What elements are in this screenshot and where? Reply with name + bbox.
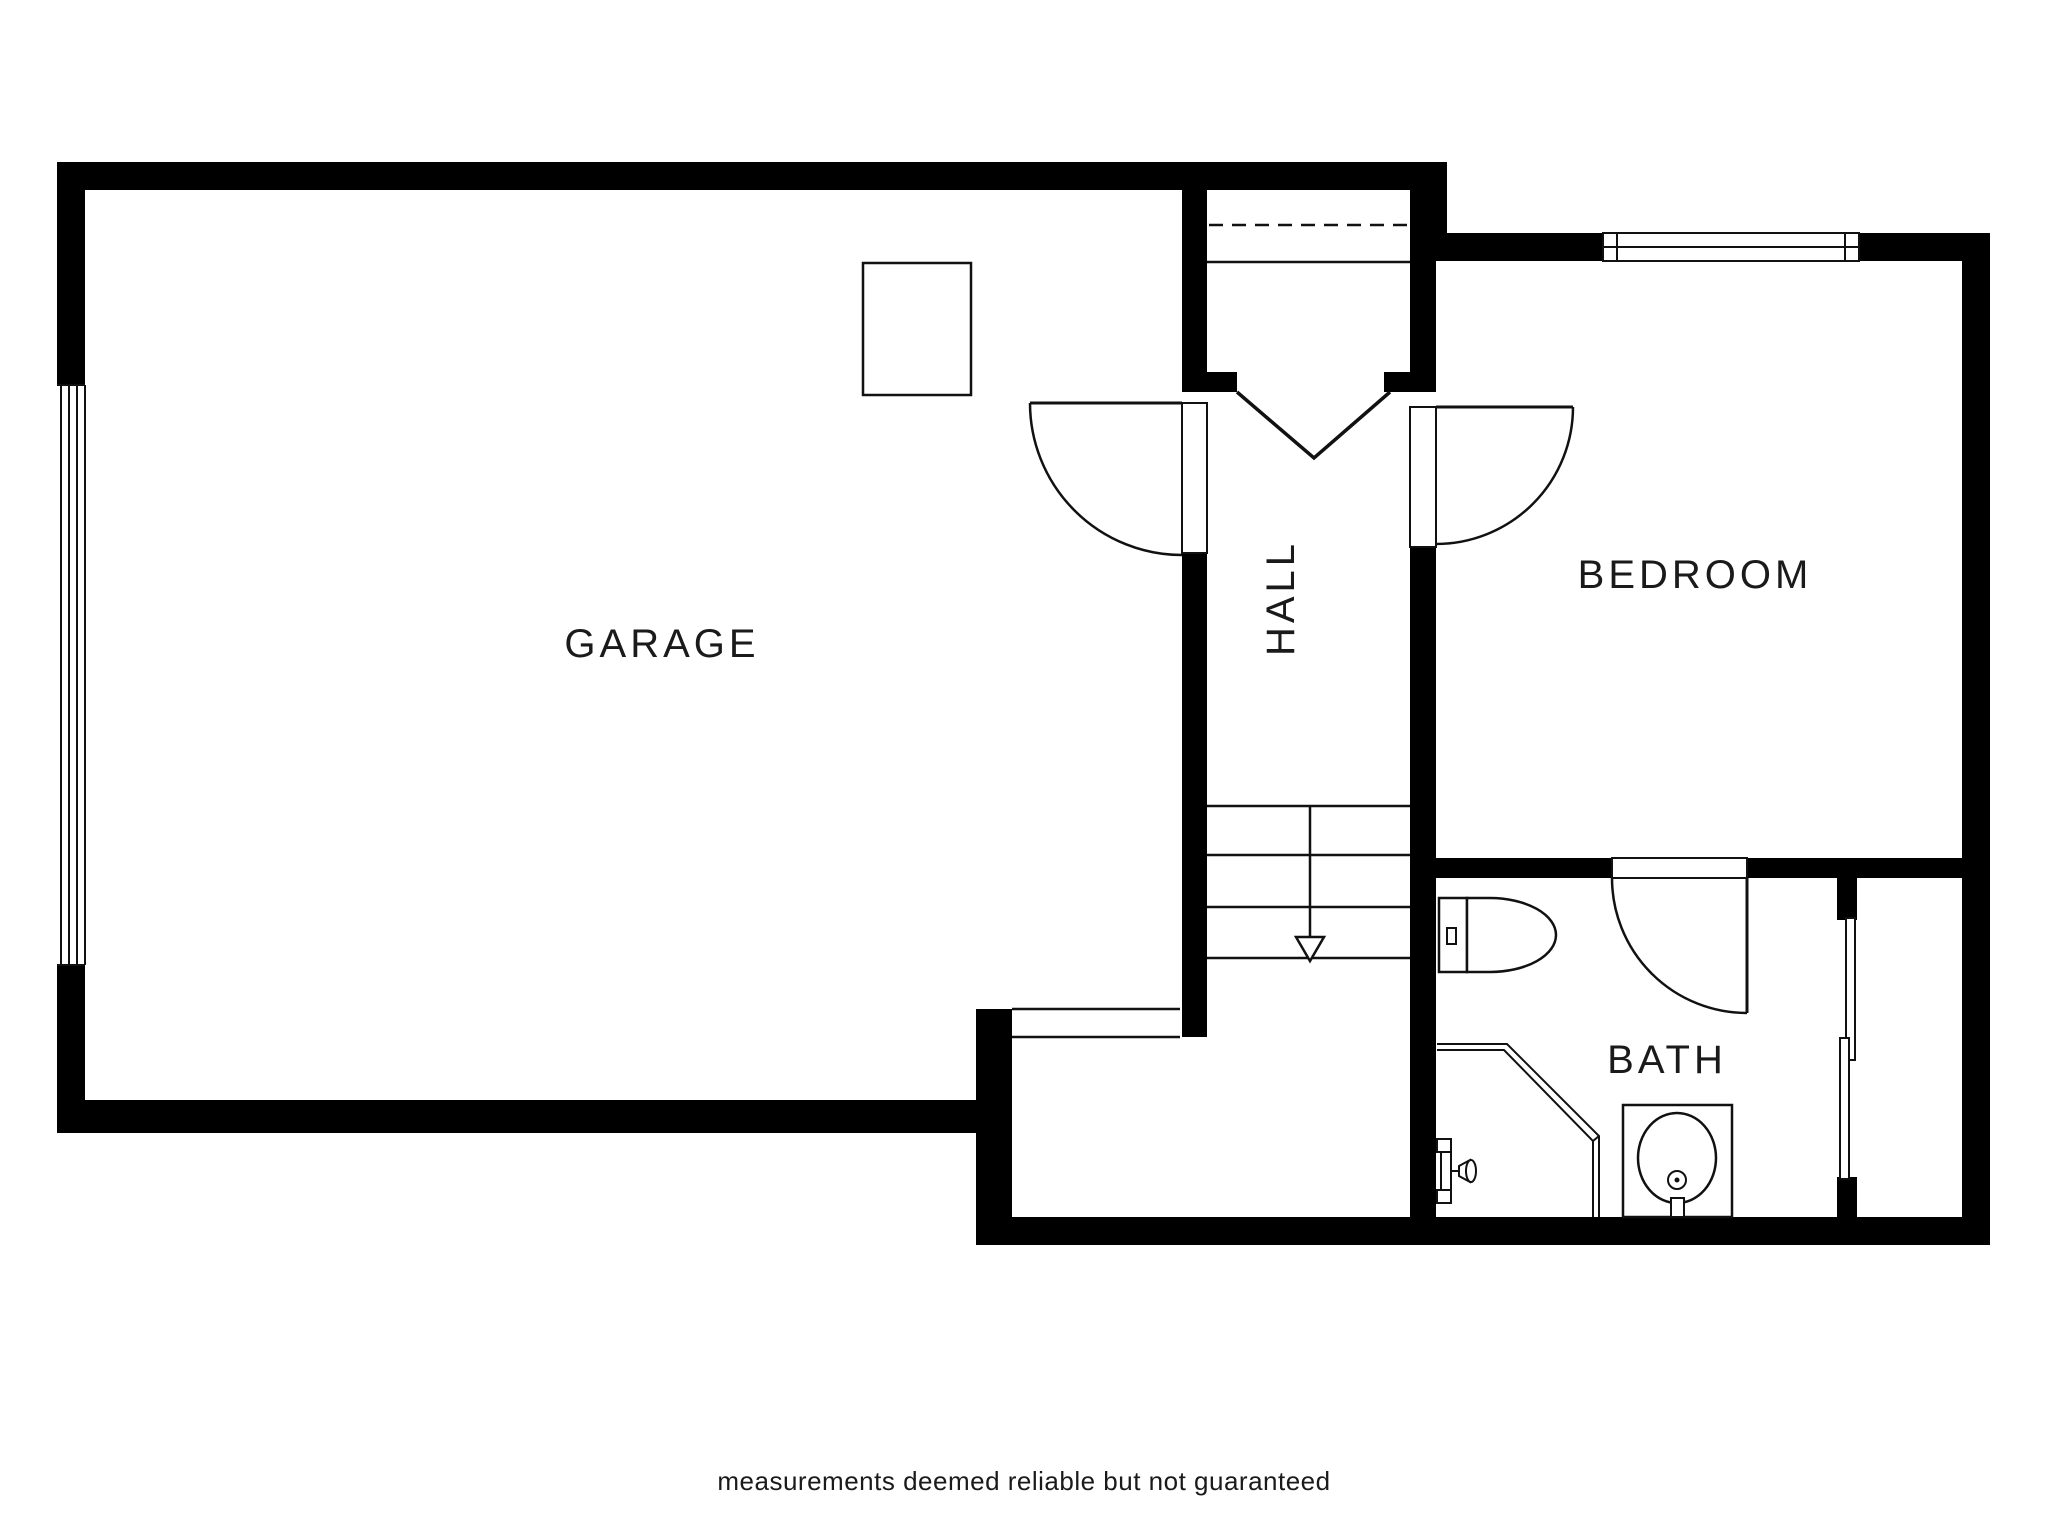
shower-enclosure <box>1437 1044 1599 1217</box>
garage-overhead-door <box>57 385 85 965</box>
entry-double-door <box>1237 392 1390 458</box>
wall-bath-window-stub-top <box>1837 878 1857 920</box>
garage-entry-opening <box>1012 1009 1180 1037</box>
disclaimer-text: measurements deemed reliable but not gua… <box>717 1466 1330 1496</box>
hall-label: HALL <box>1259 540 1303 656</box>
bedroom-window <box>1603 233 1859 261</box>
wall-hall-left-upper <box>1182 190 1207 392</box>
wall-bedroom-bath-left <box>1436 858 1612 878</box>
shower-valve <box>1437 1139 1476 1203</box>
toilet <box>1439 898 1556 972</box>
water-heater-box <box>863 263 971 395</box>
wall-top <box>57 162 1447 190</box>
wall-hall-left-jamb <box>1207 372 1237 392</box>
wall-bath-window-stub-bottom <box>1837 1177 1857 1217</box>
sink-faucet <box>1671 1198 1684 1217</box>
wall-bedroom-top-left <box>1447 233 1603 261</box>
toilet-flush-button <box>1447 928 1456 944</box>
wall-hall-right-jamb <box>1384 372 1410 392</box>
wall-bedroom-bath-right <box>1747 858 1962 878</box>
walls <box>57 162 1990 1245</box>
stairs-down <box>1207 806 1410 961</box>
bedroom-door <box>1410 407 1573 547</box>
wall-garage-bottom <box>57 1100 1008 1133</box>
wall-bottom <box>976 1217 1990 1245</box>
sink-vanity <box>1623 1105 1732 1217</box>
bath-sliding-window <box>1840 918 1855 1179</box>
bath-label: BATH <box>1607 1038 1727 1082</box>
wall-hall-right-upper <box>1410 190 1436 392</box>
wall-right <box>1962 233 1990 1245</box>
garage-label: GARAGE <box>564 622 759 666</box>
bath-door <box>1612 858 1747 1013</box>
wall-left-upper <box>57 190 85 385</box>
floor-plan: GARAGE HALL BEDROOM BATH measurements de… <box>0 0 2048 1536</box>
wall-hall-right-lower <box>1410 545 1436 1217</box>
wall-hall-left-lower <box>1182 553 1207 1037</box>
garage-hall-door <box>1030 403 1207 555</box>
bedroom-label: BEDROOM <box>1578 553 1813 597</box>
wall-entry-left <box>976 1009 1012 1245</box>
